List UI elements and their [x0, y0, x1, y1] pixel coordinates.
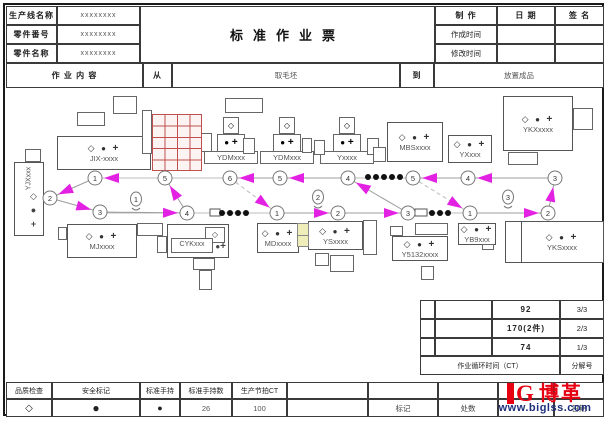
operator-icon: [131, 192, 142, 206]
walk-arrow-icon: [447, 196, 462, 208]
safety-plus-icon: +: [344, 226, 352, 237]
equipment-rect: [415, 223, 448, 235]
step-number: 1: [275, 209, 279, 218]
machine-label: MJxxxx: [90, 242, 115, 251]
wip-dot-icon: [381, 174, 387, 180]
equipment-rect: [58, 227, 67, 240]
walk-arrow-icon: [255, 195, 270, 208]
quality-diamond-icon: ◇: [86, 231, 95, 241]
machine-symbols: ◇ ● +: [399, 132, 432, 143]
wip-dot-icon: [389, 174, 395, 180]
safety-plus-icon: +: [229, 137, 238, 148]
wip-dot-icon: [373, 174, 379, 180]
wip-dot-icon: ●: [333, 227, 340, 236]
machine-symbols: ◇ ● +: [454, 139, 487, 150]
safety-plus-icon: +: [345, 137, 354, 148]
legend-quality-label: 品质检查: [6, 382, 52, 399]
step-circle: [88, 171, 102, 185]
equipment-rect: [363, 220, 377, 255]
equipment-rect: [302, 138, 312, 153]
quality-diamond-icon: ◇: [404, 239, 413, 249]
step-circle: [548, 171, 562, 185]
step-number: 4: [466, 174, 470, 183]
machine-symbols: ◇ ● +: [88, 143, 121, 154]
quality-diamond-icon: ◇: [228, 121, 234, 130]
equipment-rect: [157, 236, 167, 253]
quality-diamond-icon: ◇: [454, 139, 463, 149]
equipment-rect: [142, 110, 152, 154]
equipment-rect: [482, 244, 494, 250]
summary-cell-empty: [420, 338, 435, 356]
walk-arrow-icon: [58, 184, 74, 195]
quality-diamond-icon: ◇: [522, 114, 531, 124]
equipment-rect: [421, 266, 434, 280]
walk-arrow-icon: [422, 173, 437, 183]
wip-rect: [415, 209, 427, 216]
summary-ct-value: 92: [492, 300, 560, 319]
wip-dot-icon: [227, 210, 233, 216]
summary-fraction: 1/3: [560, 338, 604, 356]
step-circle: [270, 206, 284, 220]
machine-strip: [506, 222, 522, 262]
summary-cell-empty: [435, 319, 492, 338]
summary-footer-ct-label: 作业循环时间（CT）: [420, 356, 560, 375]
machine-symbols: ◇ ● +: [461, 224, 494, 235]
legend-takt-label: 生产节拍CT: [232, 382, 287, 399]
machine-symbols: ◇ ● +: [522, 114, 555, 125]
brand-url: www.biglss.com: [499, 402, 592, 414]
wip-dot-icon: ●: [417, 240, 424, 249]
operator-number: 3: [506, 193, 510, 202]
step-circle: [180, 206, 194, 220]
quality-diamond-icon: ◇: [399, 132, 408, 142]
walk-arrow-icon: [104, 173, 119, 183]
route-line: [165, 178, 187, 213]
machine-label: YSxxxx: [323, 237, 348, 246]
equipment-rect: [243, 138, 255, 154]
equipment-rect: [137, 223, 163, 236]
equipment-rect: [573, 108, 593, 130]
machine-mj: ◇ ● +MJxxxx: [67, 224, 137, 258]
operator-body-icon: [314, 206, 322, 208]
legend-wip-count-label: 标准手持数: [180, 382, 232, 399]
machine-symbols: ●+: [215, 241, 226, 252]
operator-number: 2: [316, 193, 320, 202]
step-circle: [93, 205, 107, 219]
walk-arrow-icon: [314, 208, 329, 218]
summary-cell-empty: [420, 300, 435, 319]
step-number: 4: [185, 209, 189, 218]
step-circle: [43, 191, 57, 205]
step-number: 6: [228, 174, 232, 183]
safety-plus-icon: +: [570, 232, 578, 243]
wip-dot-icon: [365, 174, 371, 180]
equipment-rect: [508, 152, 538, 165]
footer-cell-empty: [368, 382, 438, 399]
machine-ykx: ◇ ● +YKXxxxx: [503, 96, 573, 151]
step-number: 3: [553, 174, 557, 183]
quality-diamond-icon: ◇: [30, 191, 37, 201]
legend-takt-value: 100: [232, 399, 287, 417]
summary-fraction: 2/3: [560, 319, 604, 338]
route-return-dashed: [413, 178, 470, 213]
brand-bar-icon: [507, 383, 514, 404]
step-number: 2: [336, 209, 340, 218]
step-circle: [541, 206, 555, 220]
machine-label: YKSxxxx: [547, 243, 577, 252]
machine-y5132: ◇ ● +Y5132xxxx: [392, 236, 448, 261]
machine-label: MBSxxxx: [399, 143, 430, 152]
equipment-rect: [199, 270, 212, 290]
operator-icon: [503, 190, 514, 204]
quality-diamond-icon: ◇: [344, 121, 350, 130]
walk-arrow-icon: [76, 201, 92, 211]
step-number: 5: [163, 174, 167, 183]
walk-arrow-icon: [524, 208, 539, 218]
standard-work-sheet: 生产线名称 xxxxxxxx 零件番号 xxxxxxxx 零件名称 xxxxxx…: [0, 0, 610, 421]
machine-symbols: ◇ ● +: [546, 232, 579, 243]
step-number: 3: [406, 209, 410, 218]
equipment-rect: [315, 253, 329, 266]
walk-arrow-icon: [289, 173, 304, 183]
legend-wip-count-value: 26: [180, 399, 232, 417]
step-circle: [406, 171, 420, 185]
equipment-rect: [77, 112, 105, 126]
wip-dot-icon: ●: [467, 140, 474, 149]
wip-dot-icon: [437, 210, 443, 216]
step-circle: [401, 206, 415, 220]
route-line: [348, 178, 408, 213]
safety-dot-icon: ●: [52, 399, 140, 417]
step-number: 3: [98, 208, 102, 217]
step-number: 5: [278, 174, 282, 183]
wip-dot-icon: ●: [99, 232, 106, 241]
footer-cell-empty: [287, 399, 368, 417]
step-number: 4: [346, 174, 350, 183]
equipment-rect: [314, 140, 325, 155]
machine-label: YKXxxxx: [523, 125, 553, 134]
safety-plus-icon: +: [428, 239, 436, 250]
step-circle: [461, 171, 475, 185]
step-circle: [331, 206, 345, 220]
summary-cell-empty: [435, 300, 492, 319]
machine-y: Yxxxx: [320, 151, 374, 164]
safety-plus-icon: +: [110, 231, 118, 242]
footer-mark-label: 标记: [368, 399, 438, 417]
summary-ct-value: 170(2件): [492, 319, 560, 338]
safety-plus-icon: +: [31, 219, 36, 229]
walk-arrow-icon: [356, 183, 371, 195]
wip-dot-icon: [219, 210, 225, 216]
machine-y-body: ● +: [333, 134, 361, 152]
machine-cyk: ◇CYKxxx●+: [167, 224, 229, 258]
machine-jix: ◇ ● +JIX-xxxx: [57, 136, 151, 170]
machine-label: YB9xxx: [464, 235, 489, 244]
operator-number: 1: [134, 195, 138, 204]
machine-symbols: ◇●+: [24, 189, 43, 231]
step-circle: [158, 171, 172, 185]
safety-plus-icon: +: [112, 143, 120, 154]
machine-yb9: ◇ ● +YB9xxx: [458, 223, 496, 245]
quality-diamond-icon: ◇: [284, 121, 290, 130]
machine-label: YDMxxx: [261, 152, 313, 163]
machine-yx: ◇ ● +YXxxx: [448, 135, 492, 163]
wip-dot-icon: [429, 210, 435, 216]
machine-label: CYKxxx: [171, 238, 213, 253]
machine-label: YXxxx: [459, 150, 480, 159]
walk-arrow-icon: [384, 208, 399, 218]
route-line: [50, 178, 95, 198]
walk-arrow-icon: [545, 187, 555, 203]
walk-arrow-icon: [163, 208, 178, 218]
machine-yjx: YJXxxx◇●+: [14, 162, 44, 236]
quality-diamond-icon: ◇: [6, 399, 52, 417]
safety-plus-icon: +: [478, 139, 486, 150]
wip-dot-icon: [235, 210, 241, 216]
equipment-rect: [330, 255, 354, 272]
summary-ct-value: 74: [492, 338, 560, 356]
quality-diamond-icon: ◇: [546, 232, 555, 242]
wip-dot-icon: ●: [31, 205, 36, 215]
machine-symbols: ◇ ● +: [404, 239, 437, 250]
step-number: 5: [411, 174, 415, 183]
machine-label: JIX-xxxx: [90, 154, 118, 163]
equipment-rect: [113, 96, 137, 114]
operator-icon: [313, 190, 324, 204]
step-number: 2: [48, 194, 52, 203]
machine-symbols: ◇ ● +: [86, 231, 119, 242]
equipment-rect: [373, 147, 386, 162]
safety-plus-icon: +: [286, 228, 294, 239]
machine-mbs: ◇ ● +MBSxxxx: [387, 122, 443, 162]
machine-symbols: ◇ ● +: [262, 228, 295, 239]
wip-dot-icon: ●: [101, 144, 108, 153]
safety-plus-icon: +: [285, 137, 294, 148]
summary-fraction: 3/3: [560, 300, 604, 319]
route-line: [50, 198, 100, 212]
operator-body-icon: [132, 208, 140, 210]
summary-footer-breakdown-label: 分解号: [560, 356, 604, 375]
wip-dot-icon: ●: [535, 115, 542, 124]
material-rack-grid: [152, 114, 202, 171]
route-line: [100, 212, 187, 213]
safety-plus-icon: +: [485, 224, 493, 235]
equipment-rect: [225, 98, 263, 113]
machine-label: Yxxxx: [321, 152, 373, 163]
quality-diamond-icon: ◇: [319, 226, 328, 236]
brand-name: 博革: [539, 384, 583, 404]
machine-y-head: ◇: [339, 117, 355, 134]
step-circle: [273, 171, 287, 185]
legend-wip-label: 标准手持: [140, 382, 180, 399]
wip-dot-icon: ●: [559, 233, 566, 242]
yellow-rack-cells: [297, 223, 309, 247]
wip-dot-icon: [445, 210, 451, 216]
step-circle: [341, 171, 355, 185]
step-number: 1: [468, 209, 472, 218]
machine-ydm2-head: ◇: [279, 117, 295, 134]
machine-ydm1-body: ● +: [217, 134, 245, 152]
equipment-rect: [193, 258, 215, 270]
summary-cell-empty: [435, 338, 492, 356]
machine-ydm1-head: ◇: [223, 117, 239, 134]
wip-dot-icon: [397, 174, 403, 180]
summary-cell-empty: [420, 319, 435, 338]
machine-label: Y5132xxxx: [402, 250, 439, 259]
footer-cell-empty: [287, 382, 368, 399]
equipment-rect: [25, 149, 41, 162]
legend-safety-label: 安全标记: [52, 382, 140, 399]
machine-ys: ◇ ● +YSxxxx: [308, 221, 363, 250]
wip-dot-icon: ●: [412, 133, 419, 142]
wip-dot-icon: ●: [140, 399, 180, 417]
walk-arrow-icon: [239, 173, 254, 183]
step-circle: [463, 206, 477, 220]
safety-plus-icon: +: [423, 132, 431, 143]
step-number: 1: [93, 174, 97, 183]
logo: G 博革 www.biglss.com: [483, 376, 607, 420]
step-circle: [223, 171, 237, 185]
machine-ydm2-body: ● +: [273, 134, 301, 152]
safety-plus-icon: +: [546, 114, 554, 125]
walk-arrow-icon: [477, 173, 492, 183]
quality-diamond-icon: ◇: [88, 143, 97, 153]
wip-dot-icon: [243, 210, 249, 216]
machine-symbols: ◇ ● +: [319, 226, 352, 237]
equipment-rect: [390, 226, 403, 236]
step-number: 2: [546, 209, 550, 218]
route-return-dashed: [230, 178, 277, 213]
walk-arrow-icon: [170, 186, 182, 201]
route-line: [548, 178, 555, 213]
wip-dot-icon: ●: [474, 225, 481, 234]
wip-rect: [210, 209, 220, 216]
operator-body-icon: [504, 206, 512, 208]
quality-diamond-icon: ◇: [461, 224, 470, 234]
machine-md: ◇ ● +MDxxxx: [257, 223, 299, 253]
machine-yks: ◇ ● +YKSxxxx: [505, 221, 604, 263]
quality-diamond-icon: ◇: [262, 228, 271, 238]
wip-dot-icon: ●: [275, 229, 282, 238]
machine-label: MDxxxx: [265, 239, 292, 248]
